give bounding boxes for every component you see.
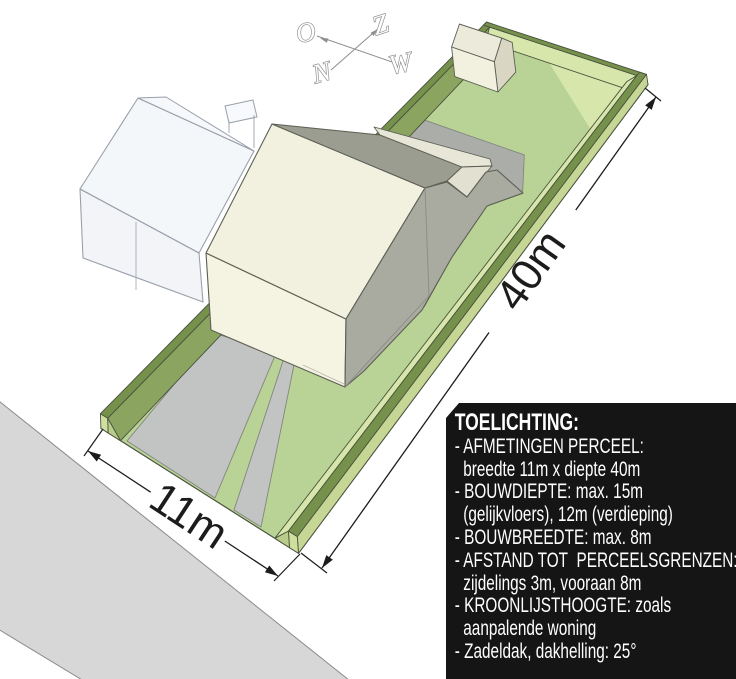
svg-text:Z: Z [368, 8, 392, 41]
svg-text:W: W [386, 46, 417, 81]
svg-text:O: O [292, 15, 319, 49]
svg-text:N: N [308, 55, 336, 89]
